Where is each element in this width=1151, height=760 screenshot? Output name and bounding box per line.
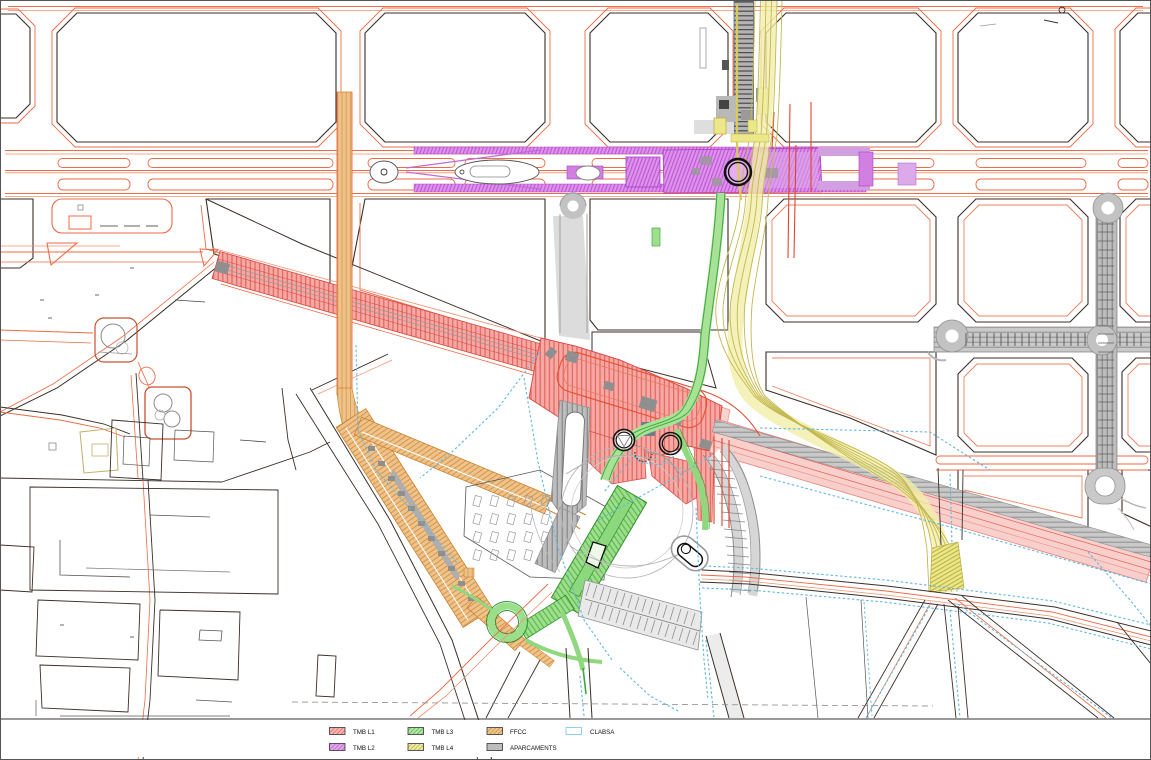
svg-text:TMB L3: TMB L3	[432, 729, 454, 736]
svg-text:TMB L4: TMB L4	[432, 745, 454, 752]
svg-text:TMB L2: TMB L2	[353, 745, 375, 752]
svg-text:FFCC: FFCC	[510, 729, 527, 736]
svg-text:CLABSA: CLABSA	[590, 729, 615, 736]
svg-text:TMB L1: TMB L1	[353, 729, 375, 736]
svg-text:APARCAMENTS: APARCAMENTS	[510, 745, 557, 752]
